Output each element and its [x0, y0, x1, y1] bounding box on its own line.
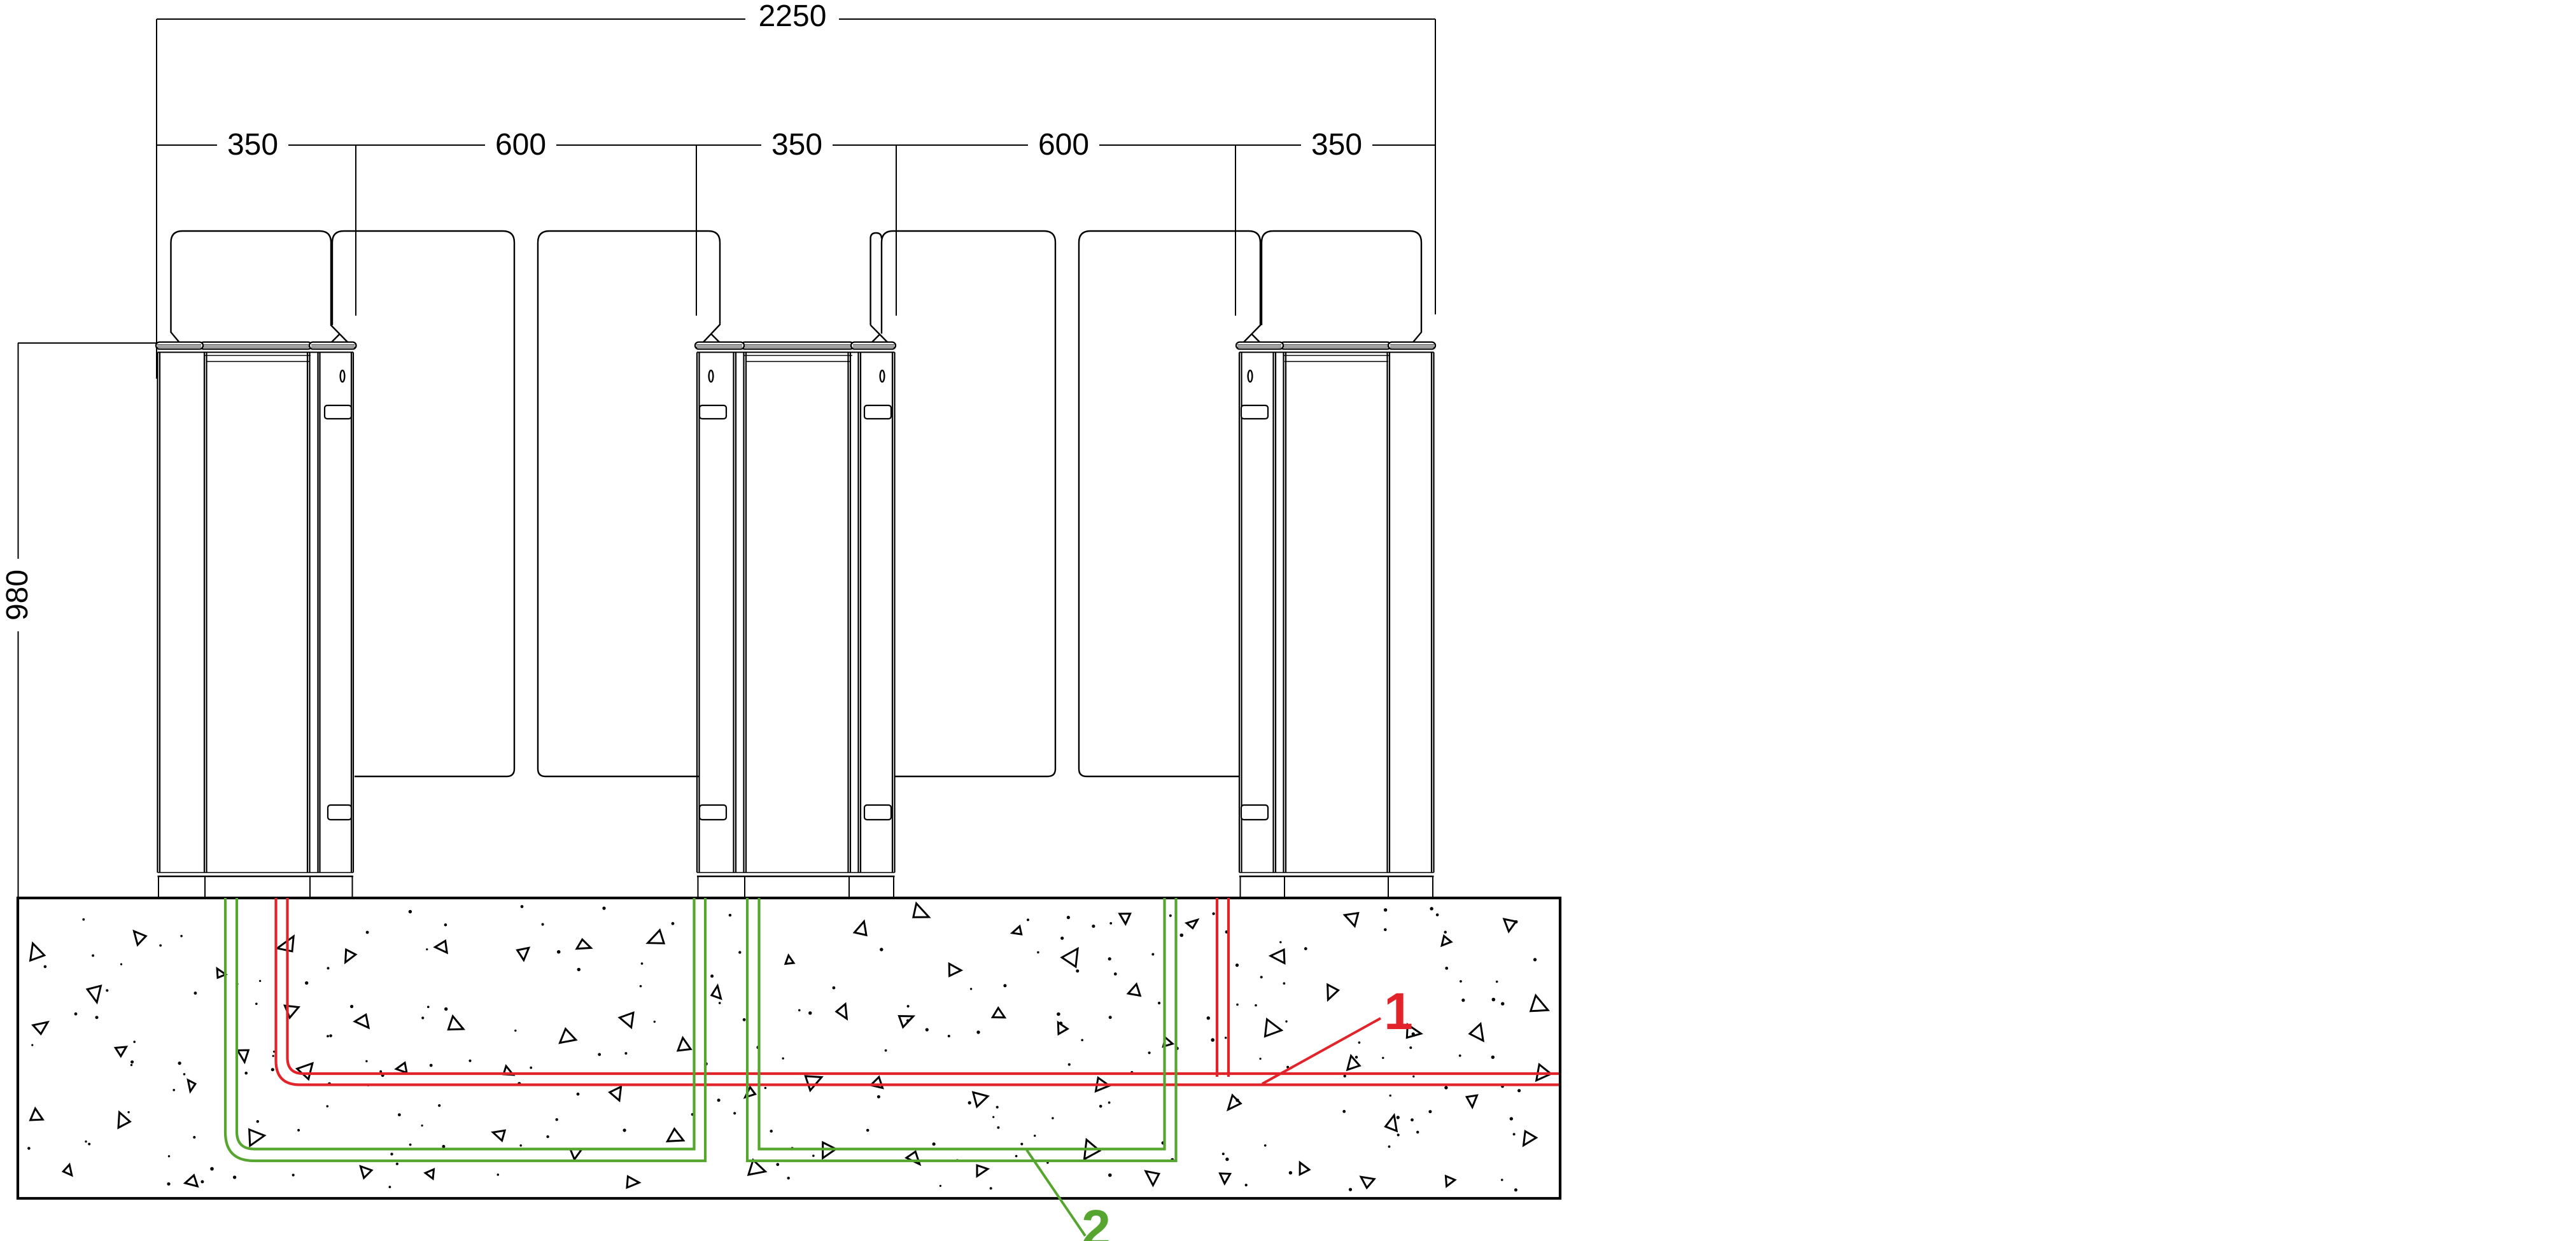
svg-text:2250: 2250	[759, 0, 827, 33]
svg-text:2: 2	[1081, 1200, 1111, 1241]
svg-text:350: 350	[771, 128, 822, 162]
svg-text:980: 980	[1, 570, 34, 620]
svg-text:1: 1	[1384, 983, 1413, 1041]
svg-text:350: 350	[227, 128, 278, 162]
svg-text:350: 350	[1311, 128, 1362, 162]
svg-text:600: 600	[495, 128, 546, 162]
svg-text:600: 600	[1038, 128, 1089, 162]
